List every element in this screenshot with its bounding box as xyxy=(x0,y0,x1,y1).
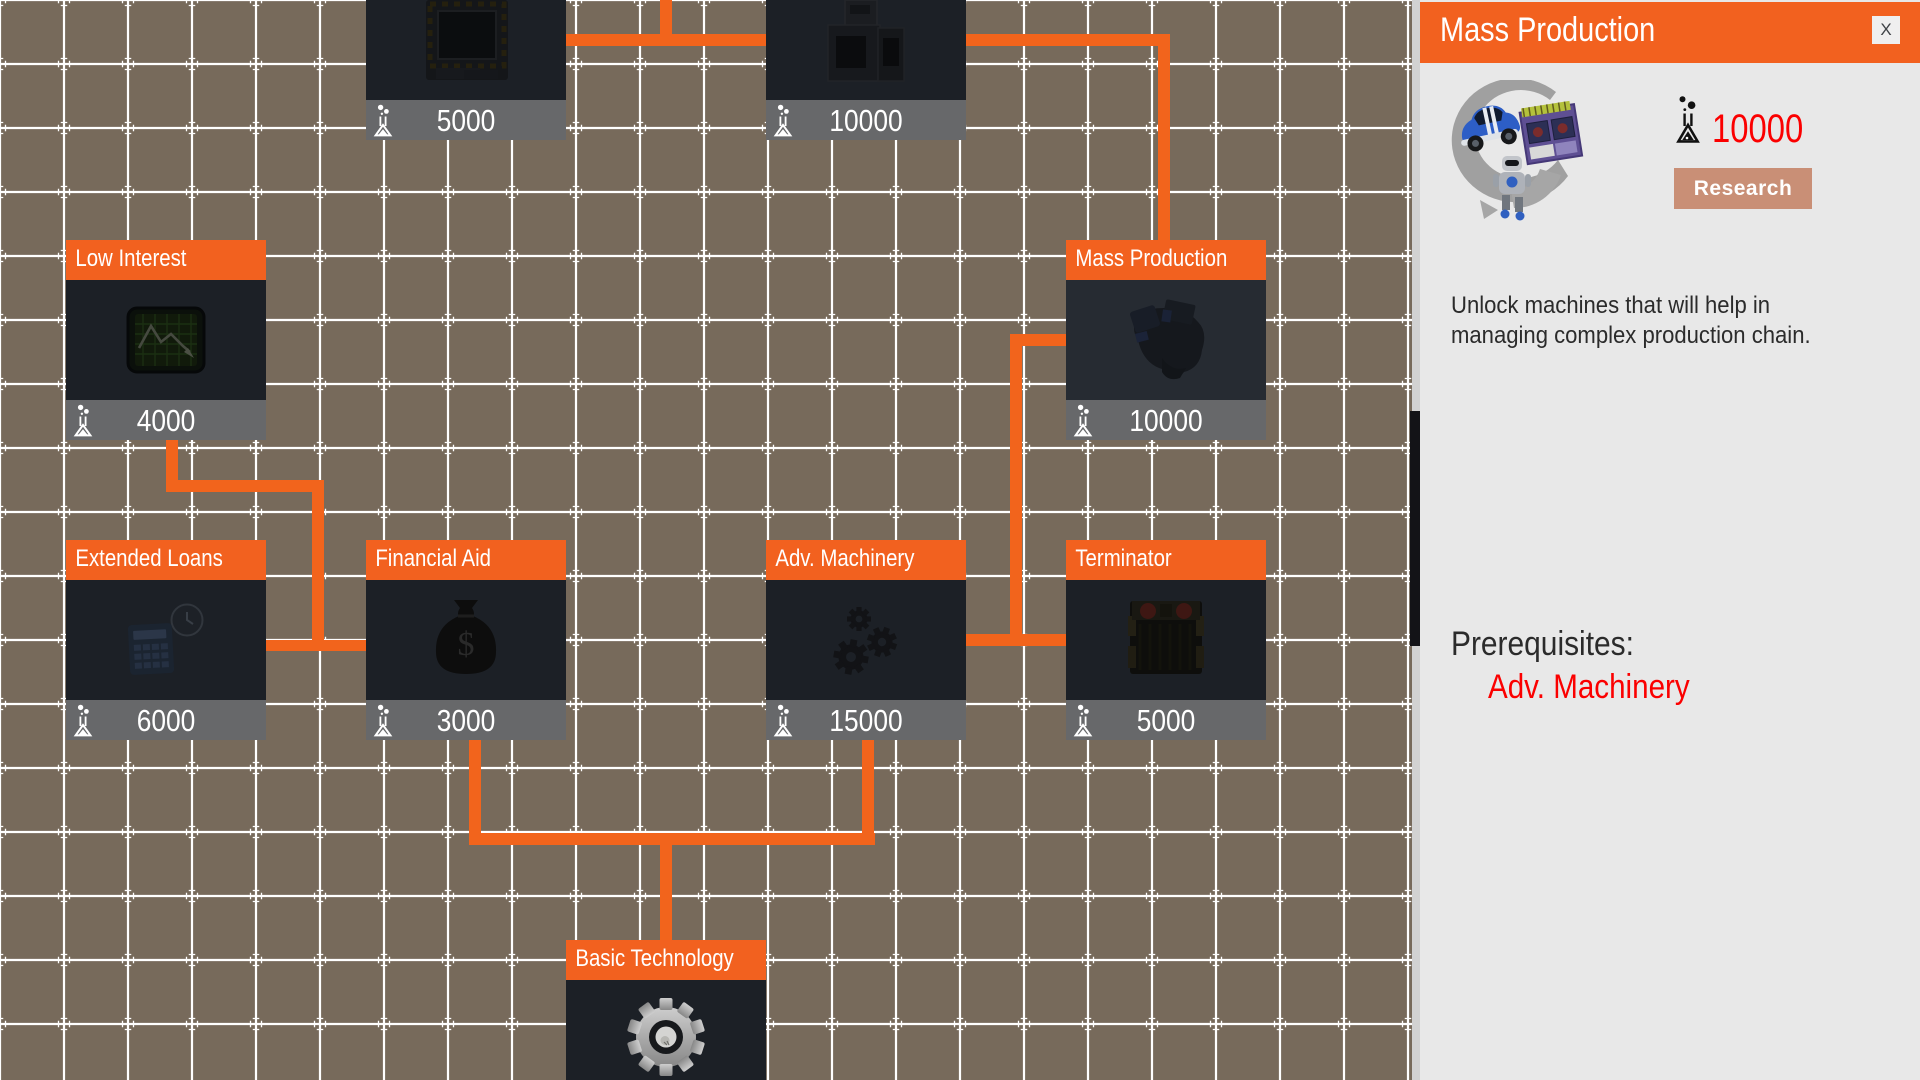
svg-text:$: $ xyxy=(458,626,475,663)
